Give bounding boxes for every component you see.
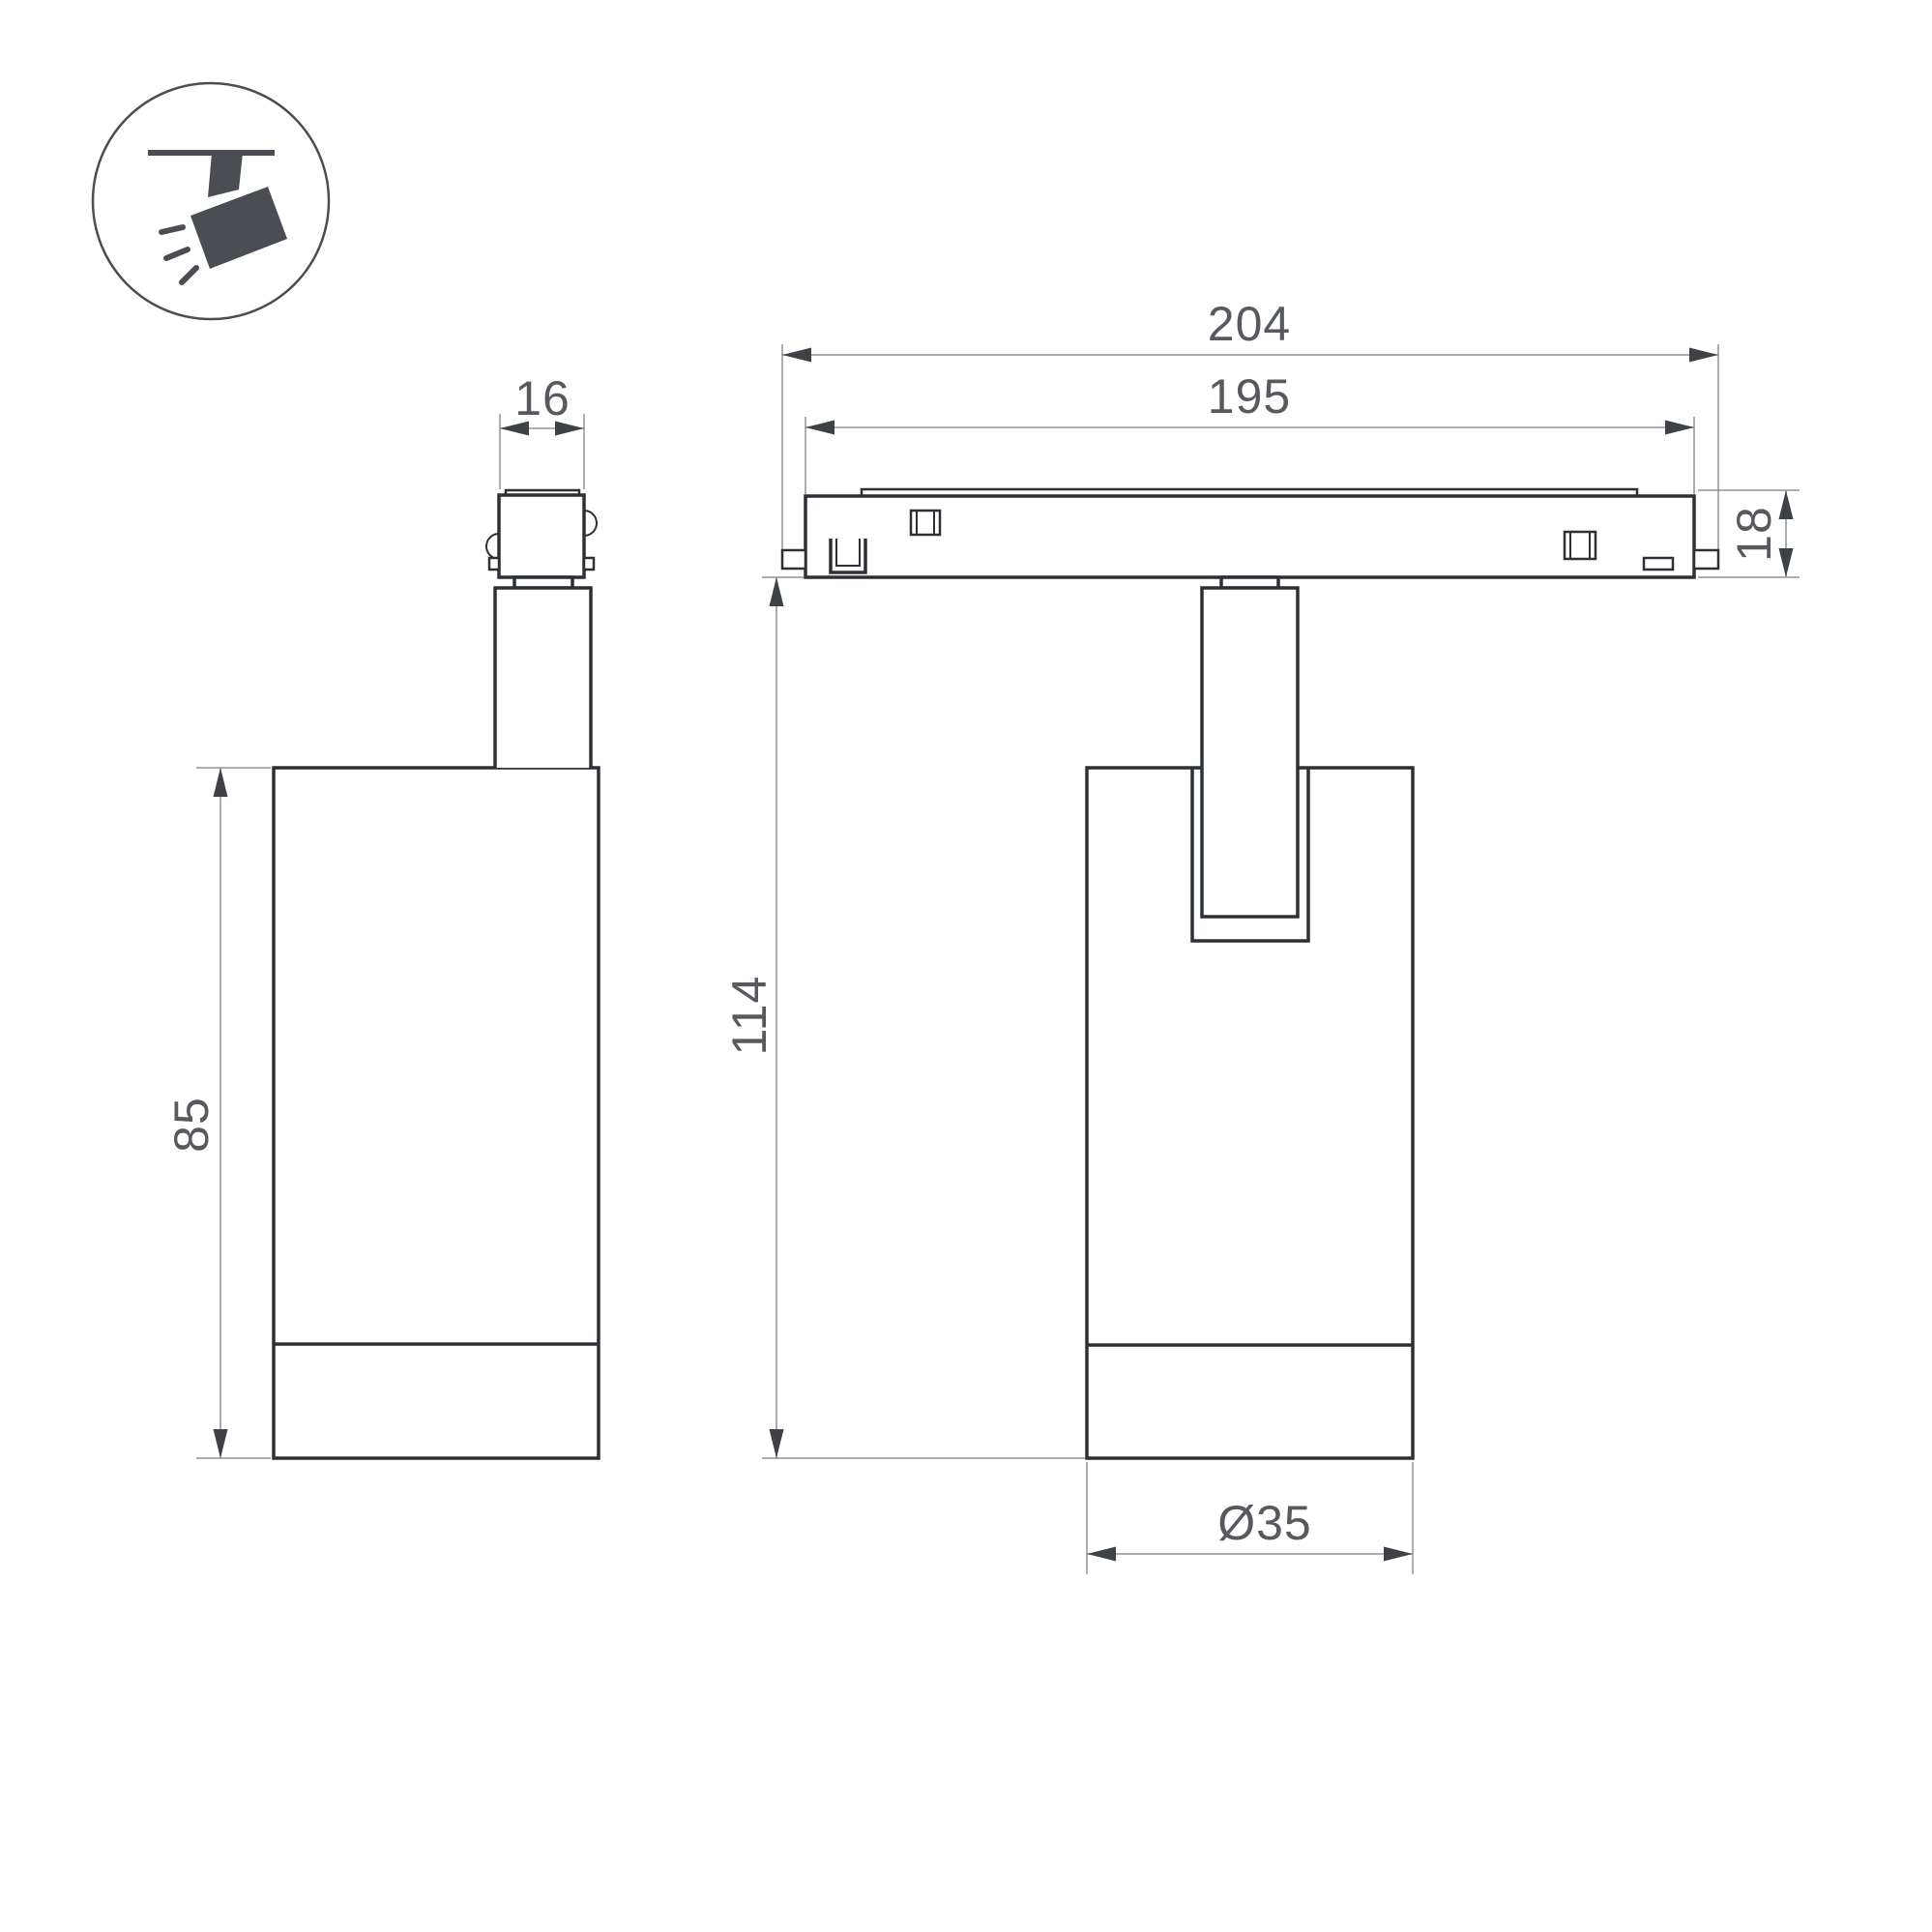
side-adapter-right-ear — [584, 558, 594, 570]
arrowhead-up — [214, 768, 228, 797]
arrowhead-up — [770, 577, 784, 606]
icon-circle — [93, 83, 329, 319]
dim-label-195: 195 — [1208, 369, 1291, 424]
dim-adapter-width: 16 — [500, 371, 584, 489]
technical-drawing-canvas: 16 204 195 18 — [0, 0, 1932, 1932]
side-body — [274, 768, 599, 1458]
light-rays-icon — [161, 227, 196, 282]
arrowhead-right — [1665, 421, 1694, 435]
dim-label-18: 18 — [1727, 506, 1781, 562]
track-left-endcap — [782, 550, 805, 569]
dim-overall-height: 114 — [722, 577, 1085, 1458]
dim-label-d35: Ø35 — [1217, 1496, 1312, 1550]
track-right-endcap — [1694, 550, 1718, 569]
side-adapter-left-ear — [489, 558, 499, 570]
arrowhead-right — [1384, 1547, 1413, 1562]
dim-label-85: 85 — [164, 1097, 219, 1153]
dim-body-diameter: Ø35 — [1087, 1462, 1413, 1574]
arrowhead-down — [770, 1429, 784, 1458]
front-view — [782, 489, 1718, 1458]
front-stem — [1202, 588, 1298, 917]
arrowhead-down — [214, 1429, 228, 1458]
side-stem — [495, 588, 591, 768]
dim-body-height: 85 — [164, 768, 271, 1458]
track-body — [805, 496, 1694, 577]
side-view — [274, 490, 599, 1458]
arrowhead-left — [782, 348, 811, 363]
arrowhead-left — [1087, 1547, 1116, 1562]
side-adapter — [499, 495, 584, 577]
side-adapter-right-arc — [584, 511, 597, 536]
drawing-svg: 16 204 195 18 — [0, 0, 1932, 1932]
arrowhead-left — [805, 421, 834, 435]
side-adapter-left-arc — [486, 534, 499, 559]
track-right-slot-detail — [1644, 558, 1673, 570]
spotlight-icon-badge — [93, 83, 329, 319]
dim-label-114: 114 — [722, 976, 776, 1056]
lamp-body-icon — [190, 187, 287, 269]
track-right-socket — [1565, 532, 1595, 559]
dim-label-16: 16 — [514, 371, 571, 425]
dim-label-204: 204 — [1208, 297, 1291, 351]
arrowhead-right — [1689, 348, 1718, 363]
track-left-socket — [911, 511, 940, 535]
dim-track-length: 195 — [805, 369, 1694, 494]
track-stem-icon — [208, 153, 243, 197]
